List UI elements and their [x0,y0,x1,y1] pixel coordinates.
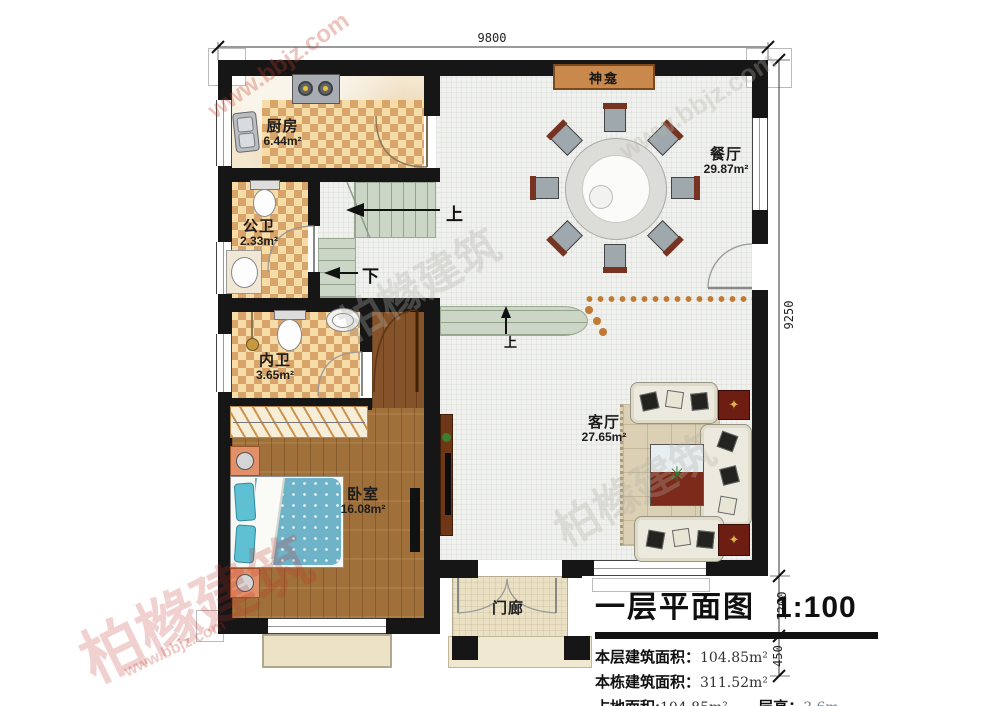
dining-chair [604,106,626,132]
vanity-public [226,250,262,294]
living-name: 客厅 [556,414,652,431]
wall-left-a [218,76,232,100]
room-label-bedroom: 卧室 16.08m² [318,486,408,517]
window-innerbath-left [216,334,232,392]
sofa-pillow [672,528,691,547]
window-kitchen-left [216,100,232,166]
dining-chair [604,244,626,270]
wall-right-c [752,290,768,576]
sofa-pillow [639,391,659,411]
info-row-floor-area: 本层建筑面积：104.85m² [595,646,895,667]
bedroom-bay-window [262,634,392,668]
living-area: 27.65m² [556,431,652,445]
toilet-bowl [253,189,276,217]
sofa-bottom [634,516,724,562]
title-underline [595,632,878,639]
tv-cabinet-living [440,414,453,536]
stove [292,74,340,104]
wall-living-bottom-b [706,560,768,576]
wall-bedroom-bottom-a [218,618,268,634]
dining-area: 29.87m² [678,163,774,177]
floor-transition-dotted-line [584,294,754,304]
step-dot [593,317,601,325]
step-dot [585,306,593,314]
wall-bedroom-right [424,298,440,634]
tv-living [445,453,451,515]
sofa-pillow [665,390,684,409]
info-value: 311.52m² [700,675,768,691]
sofa-right [700,424,752,526]
plan-scale: 1:100 [775,591,857,625]
porch-post-d [564,636,590,660]
info-value: 3.6m [803,700,839,706]
toilet-public [250,180,278,218]
porch-post-c [452,636,478,660]
info-label: 占地面积: [595,699,660,706]
end-table: ✦ [718,390,750,420]
title-block: 一层平面图 1:100 本层建筑面积：104.85m² 本栋建筑面积：311.5… [595,582,895,706]
sofa-pillow [646,530,666,550]
sink-inner [326,308,360,332]
toilet-bowl [277,319,302,351]
porch-post-b [562,560,582,578]
public-bath-area: 2.33m² [220,235,298,249]
dining-table-glass [589,185,613,209]
inner-bath-area: 3.65m² [236,369,314,383]
stair-down-label: 下 [362,262,379,287]
info-label: 层高： [758,699,803,706]
room-label-porch: 门廊 [476,600,540,617]
dining-chair [671,177,697,199]
bed-pillow [234,482,257,521]
staircase-down [318,238,356,298]
sofa-pillow [719,465,740,486]
wall-right-a [752,60,768,118]
bedroom-area: 16.08m² [318,503,408,517]
room-label-inner-bath: 内卫 3.65m² [236,352,314,383]
info-value: 104.85m² [660,700,728,706]
room-label-living: 客厅 27.65m² [556,414,652,445]
wall-innerbath-right [360,312,372,352]
nightstand [230,568,260,598]
plant-icon: ✳ [669,465,686,485]
toilet-inner [274,310,304,352]
bedroom-name: 卧室 [318,486,408,503]
room-label-dining: 餐厅 29.87m² [678,146,774,177]
porch-name: 门廊 [476,600,540,617]
room-label-kitchen: 厨房 6.44m² [240,118,325,149]
sink-public [231,257,258,288]
bedroom-vestibule-floor [372,310,424,408]
staircase-up [354,182,436,238]
shrine-cabinet: 神龛 [553,64,655,90]
burner-flame [323,86,328,91]
info-value: 104.85m² [700,650,768,666]
burner-flame [303,86,308,91]
info-row-building-area: 本栋建筑面积：311.52m² [595,671,895,692]
window-living-bottom [594,560,706,576]
shower-head [246,338,259,351]
kitchen-name: 厨房 [240,118,325,135]
wardrobe-rail [233,422,365,423]
sofa-pillow [717,431,739,453]
kitchen-area: 6.44m² [240,135,325,149]
sofa-pillow [690,392,709,411]
plan-title: 一层平面图 [595,582,755,626]
step-up-label: 上 [504,332,517,351]
info-row-land-area: 占地面积:104.85m² 层高：3.6m [595,696,895,706]
shower-hose [251,312,253,340]
dining-chair [533,177,559,199]
wall-kitchen-dining-divider [424,60,440,116]
info-label: 本栋建筑面积： [595,674,700,691]
nightstand-lamp [236,452,254,470]
sink-inner-basin [332,313,354,328]
shrine-label: 神龛 [589,68,619,87]
wardrobe [230,406,368,438]
tv-bedroom [410,488,420,552]
public-bath-name: 公卫 [220,218,298,235]
sofa-pillow [696,530,715,549]
end-table: ✦ [718,524,750,556]
coffee-table: ✳ [650,444,704,506]
dim-top-width: 9800 [462,31,522,45]
step-dot [599,328,607,336]
wall-publicbath-right-b [308,272,320,298]
dim-right-height: 9250 [782,285,796,345]
wall-right-b [752,210,768,244]
stair-up-label: 上 [446,200,463,225]
plant-small [442,433,451,442]
room-label-public-bath: 公卫 2.33m² [220,218,298,249]
sofa-pillow [718,496,738,516]
wall-mid-horizontal [218,298,440,312]
wall-publicbath-right-a [308,182,320,226]
inner-bath-name: 内卫 [236,352,314,369]
dining-name: 餐厅 [678,146,774,163]
porch-post-a [440,560,478,578]
bed-pillow [234,524,257,563]
nightstand [230,446,260,476]
floor-plan: 神龛 [0,0,1000,706]
info-label: 本层建筑面积： [595,649,700,666]
window-bedroom-bottom [268,618,386,634]
nightstand-lamp [236,574,254,592]
